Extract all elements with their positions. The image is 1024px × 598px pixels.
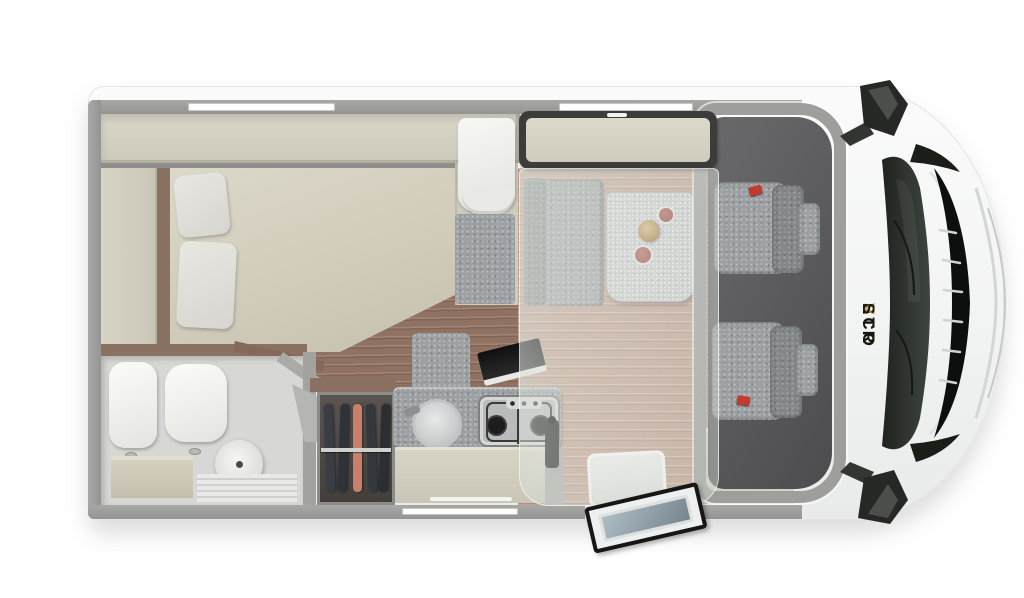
washbasin-drain bbox=[236, 461, 243, 468]
pillow bbox=[173, 171, 231, 238]
mirror-bottom bbox=[840, 462, 908, 524]
headlight-top bbox=[910, 144, 960, 172]
kitchen-sink bbox=[412, 399, 462, 449]
shower-tray bbox=[197, 474, 297, 502]
bathroom-bench bbox=[111, 456, 193, 498]
side-unit-cushion bbox=[455, 214, 515, 304]
headlight-bottom bbox=[910, 434, 960, 462]
front-grille bbox=[930, 168, 970, 438]
drop-down-bed-latch bbox=[607, 113, 627, 117]
brand-logo: ETRVSCO bbox=[853, 243, 883, 363]
drop-down-bed-overlay bbox=[519, 168, 719, 506]
drop-down-bed-mattress bbox=[526, 118, 710, 162]
wardrobe bbox=[317, 392, 395, 505]
toilet bbox=[165, 364, 227, 442]
windshield bbox=[882, 157, 930, 450]
bathroom-sink-unit bbox=[109, 362, 157, 448]
window-top-front bbox=[559, 103, 693, 111]
kitchen-side-panel bbox=[412, 333, 470, 391]
kitchen-drawer-handle bbox=[430, 497, 512, 501]
drop-down-bed-box bbox=[519, 111, 717, 169]
wall-bottom-right bbox=[698, 505, 802, 519]
pillow bbox=[176, 241, 237, 330]
front-bumper bbox=[976, 188, 1005, 418]
window-top-rear bbox=[188, 103, 335, 111]
stove-burner bbox=[488, 417, 505, 434]
bedside-cabinet bbox=[101, 168, 157, 352]
bed-head-partition bbox=[157, 168, 170, 352]
bathroom bbox=[101, 356, 303, 505]
floorplan-canvas: ETRVSCO bbox=[0, 0, 1024, 598]
wall-rear bbox=[88, 100, 101, 519]
entry-door-window bbox=[598, 494, 694, 542]
mirror-top bbox=[840, 80, 908, 146]
side-unit-flap-edge bbox=[462, 186, 514, 214]
drain bbox=[189, 448, 201, 455]
window-bottom bbox=[402, 508, 518, 515]
brand-text-post: SCO bbox=[853, 303, 883, 349]
wardrobe-top-trim bbox=[310, 378, 396, 392]
wardrobe-rail bbox=[321, 448, 391, 452]
